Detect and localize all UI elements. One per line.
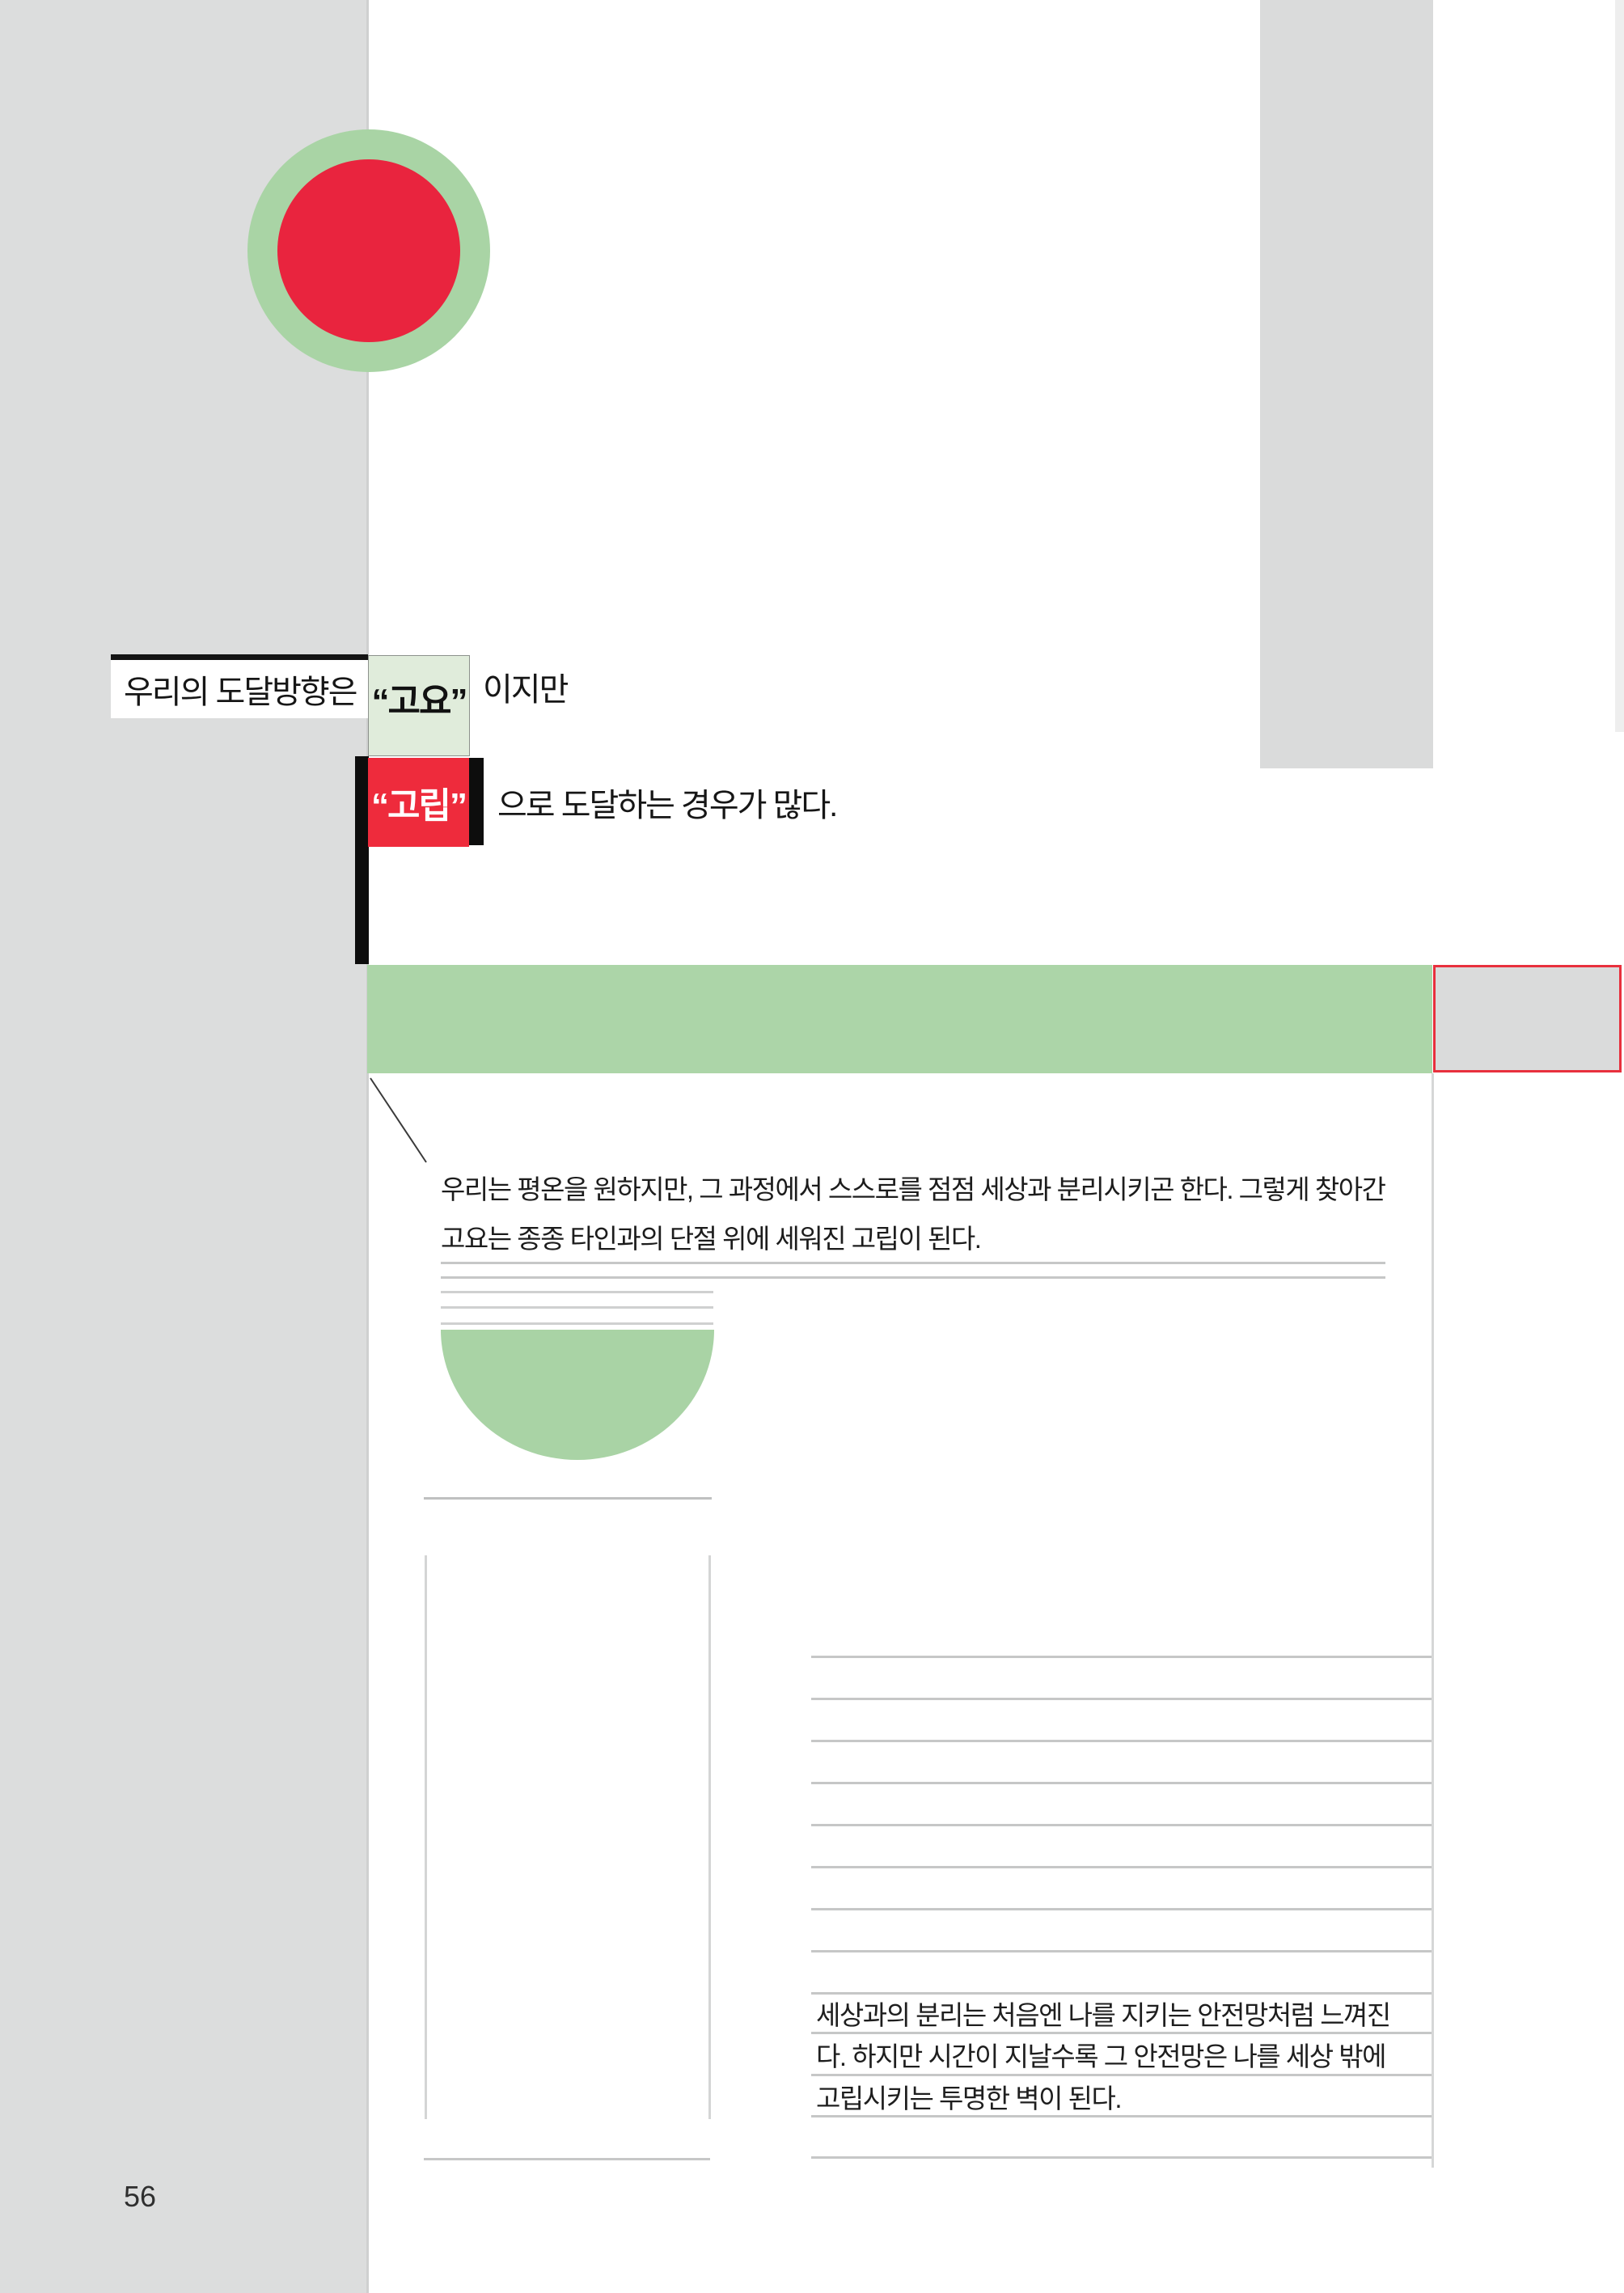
ruled-line — [424, 1497, 712, 1500]
body-paragraph: 우리는 평온을 원하지만, 그 과정에서 스스로를 점점 세상과 분리시키곤 한… — [441, 1165, 1411, 1263]
ruled-line — [811, 1866, 1432, 1868]
black-bar-right — [469, 758, 484, 845]
headline-prefix: 우리의 도달방향은 — [124, 666, 357, 713]
calm-highlight-box: “고요” — [368, 655, 470, 756]
green-ring-circle — [247, 129, 490, 372]
ruled-line — [811, 2156, 1432, 2159]
magazine-page: 우리의 도달방향은 “고요” 이지만 “고립” 으로 도달하는 경우가 많다. … — [0, 0, 1624, 2293]
red-dot-circle — [277, 159, 460, 342]
green-semicircle — [441, 1330, 714, 1460]
note-line: 다. 하지만 시간이 지날수록 그 안전망은 나를 세상 밖에 — [816, 2034, 1439, 2075]
tall-outline-box — [425, 1555, 711, 2119]
note-line: 세상과의 분리는 처음엔 나를 지키는 안전망처럼 느껴진 — [816, 1993, 1439, 2033]
isolation-suffix: 으로 도달하는 경우가 많다. — [497, 758, 836, 847]
note-line: 고립시키는 투명한 벽이 된다. — [816, 2076, 1439, 2117]
ruled-line — [441, 1322, 713, 1325]
ruled-line — [811, 1740, 1432, 1742]
isolation-highlight-text: “고립” — [371, 776, 466, 828]
green-band — [367, 965, 1432, 1073]
red-outlined-panel — [1433, 965, 1622, 1072]
right-edge-strip — [1615, 0, 1624, 732]
ruled-line — [811, 1824, 1432, 1826]
ruled-line — [811, 1950, 1432, 1952]
headline-strip: 우리의 도달방향은 — [111, 654, 368, 718]
ruled-line — [811, 1908, 1432, 1910]
ruled-line — [424, 2158, 710, 2160]
ruled-line — [441, 1306, 713, 1309]
isolation-highlight-box: “고립” — [368, 758, 469, 847]
ruled-line — [811, 1656, 1432, 1658]
ruled-line — [441, 1291, 713, 1293]
ruled-line — [441, 1276, 1385, 1279]
top-right-gray-panel — [1260, 0, 1433, 768]
ruled-line — [441, 1262, 1385, 1264]
black-bar-left — [355, 756, 369, 964]
ruled-line — [811, 1698, 1432, 1700]
page-number: 56 — [124, 2180, 156, 2214]
ruled-line — [811, 1782, 1432, 1784]
headline-suffix: 이지만 — [483, 654, 567, 718]
callout-line — [364, 1072, 437, 1169]
calm-highlight-text: “고요” — [372, 672, 467, 724]
